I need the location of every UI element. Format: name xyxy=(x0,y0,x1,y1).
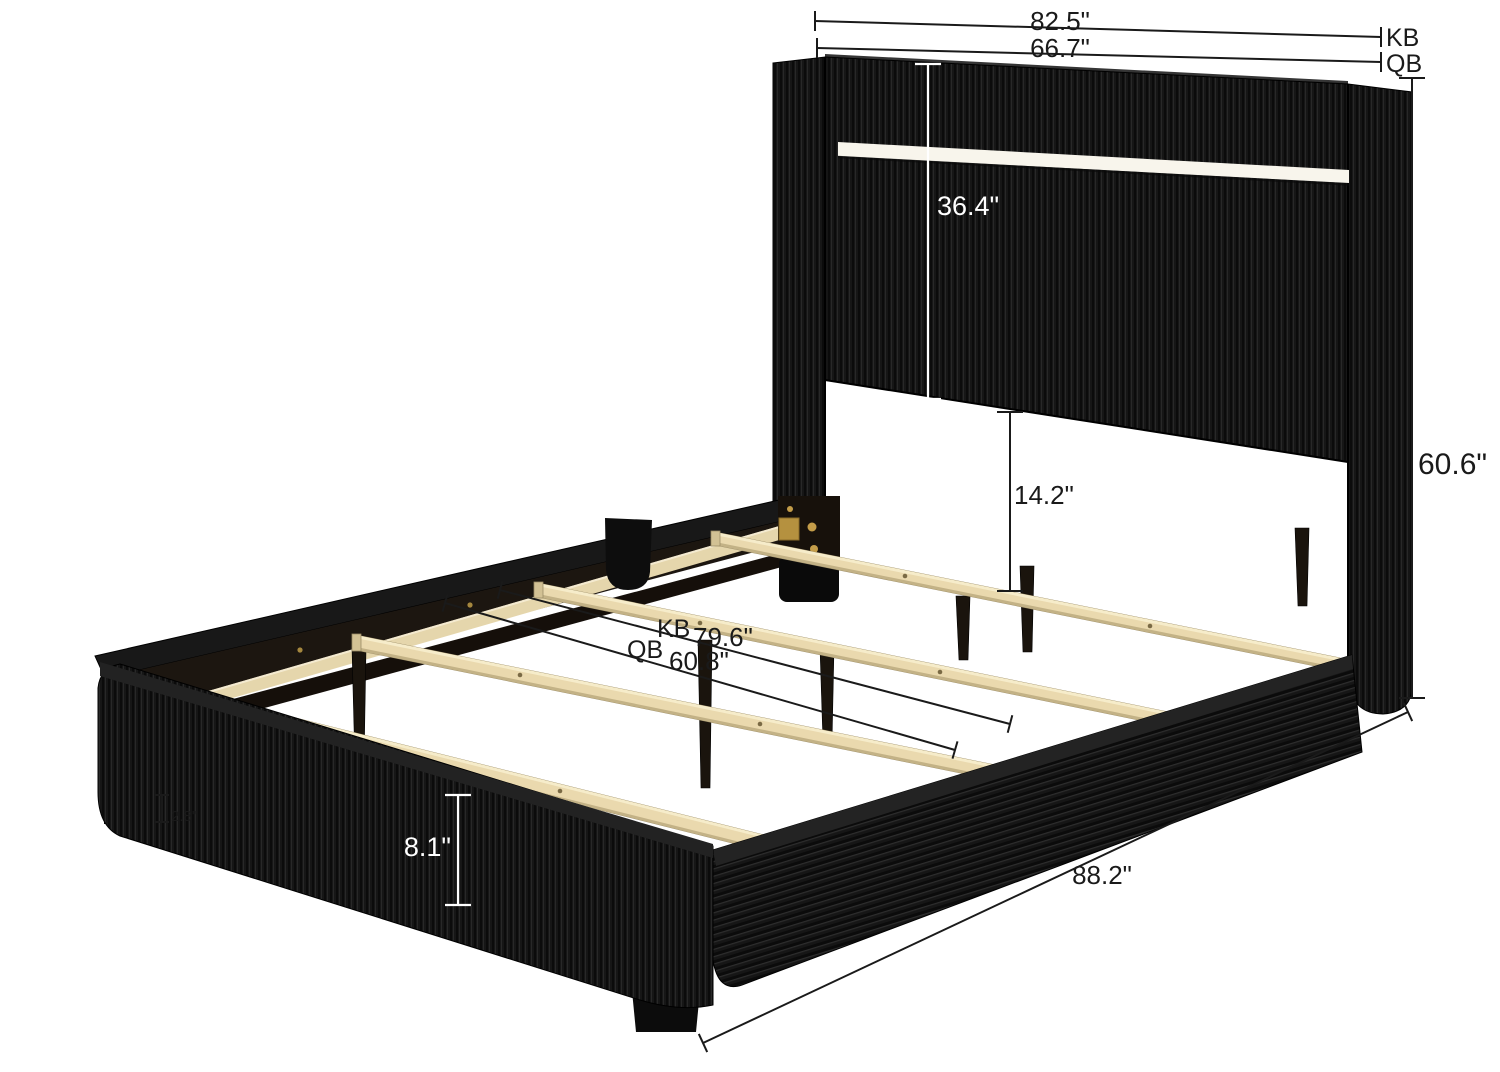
dim-label-14-2: 14.2" xyxy=(1014,480,1074,510)
support-leg xyxy=(820,648,834,742)
headboard-center-foot xyxy=(605,518,652,590)
dim-label-88-2: 88.2" xyxy=(1072,860,1132,890)
diagram-canvas: 82.5" KB 66.7" QB 60.6" 36.4" xyxy=(0,0,1500,1072)
rail-screw xyxy=(467,602,472,607)
dim-tag-kb: KB xyxy=(1386,24,1419,52)
dim-tag-qb: QB xyxy=(1386,50,1422,78)
rail-screw xyxy=(297,647,302,652)
dim-panel-to-slat: 14.2" xyxy=(997,412,1074,591)
dim-label-60-8: 60.8" xyxy=(669,646,729,676)
dim-total-height: 60.6" xyxy=(1399,78,1487,698)
dim-label-2-8: 2.8" xyxy=(171,808,197,825)
dim-label-66-7: 66.7" xyxy=(1030,33,1090,63)
dim-tag-slat-qb: QB xyxy=(627,636,663,664)
dim-label-82-5: 82.5" xyxy=(1030,6,1090,36)
headboard-right-wing xyxy=(1348,84,1412,714)
dim-top-width-kb: 82.5" KB xyxy=(815,6,1419,52)
headboard-left-wing xyxy=(773,57,825,509)
left-rail-inner-face xyxy=(105,517,800,710)
support-leg xyxy=(956,596,970,660)
headboard-main-panel xyxy=(825,57,1348,462)
dim-label-36-4: 36.4" xyxy=(937,191,999,221)
dim-label-8-1: 8.1" xyxy=(404,832,451,862)
bracket-gold-plate xyxy=(779,518,799,540)
bracket-screw xyxy=(808,523,817,532)
dim-label-60-6: 60.6" xyxy=(1418,448,1487,481)
right-side-rail xyxy=(713,655,1362,987)
bracket-screw xyxy=(787,506,793,512)
bed-dimension-diagram: 82.5" KB 66.7" QB 60.6" 36.4" xyxy=(0,0,1500,1072)
support-leg xyxy=(1295,528,1309,606)
